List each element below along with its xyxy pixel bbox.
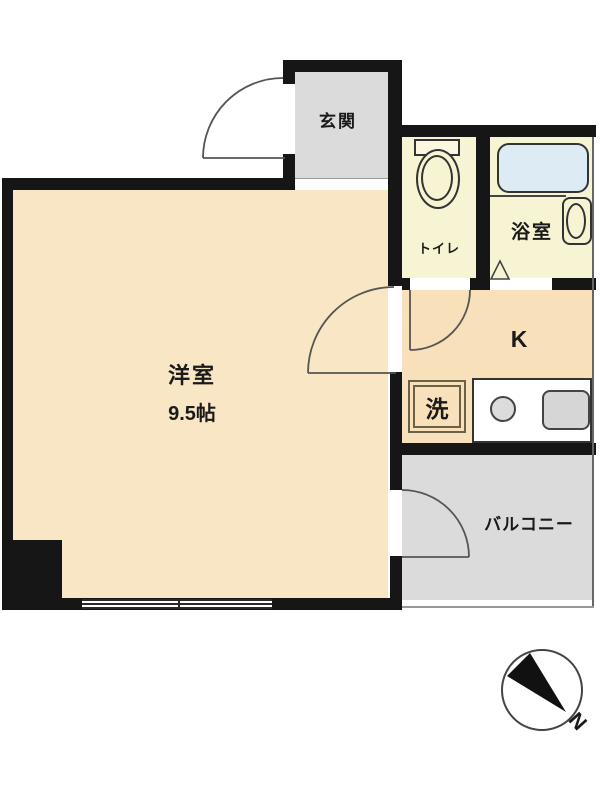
entrance-label: 玄関 [303,106,373,132]
entrance-door-swing-icon [203,78,285,158]
toilet-label: トイレ [405,238,473,256]
kitchen-label: K [499,324,539,354]
floorplan: 玄関 トイレ 浴室 洋室 9.5帖 K 洗 バルコニー N [0,0,600,800]
western-room-label: 洋室 9.5帖 [122,358,262,426]
western-room-size: 9.5帖 [122,397,262,426]
balcony-label: バルコニー [455,511,600,533]
room-kitchen-door-swing-icon [308,287,396,373]
bathroom-label: 浴室 [494,218,570,242]
bathroom-folding-door-icon [491,261,509,279]
washer-label: 洗 [408,380,466,433]
western-room-name: 洋室 [122,358,262,390]
toilet-door-swing-icon [410,290,470,350]
